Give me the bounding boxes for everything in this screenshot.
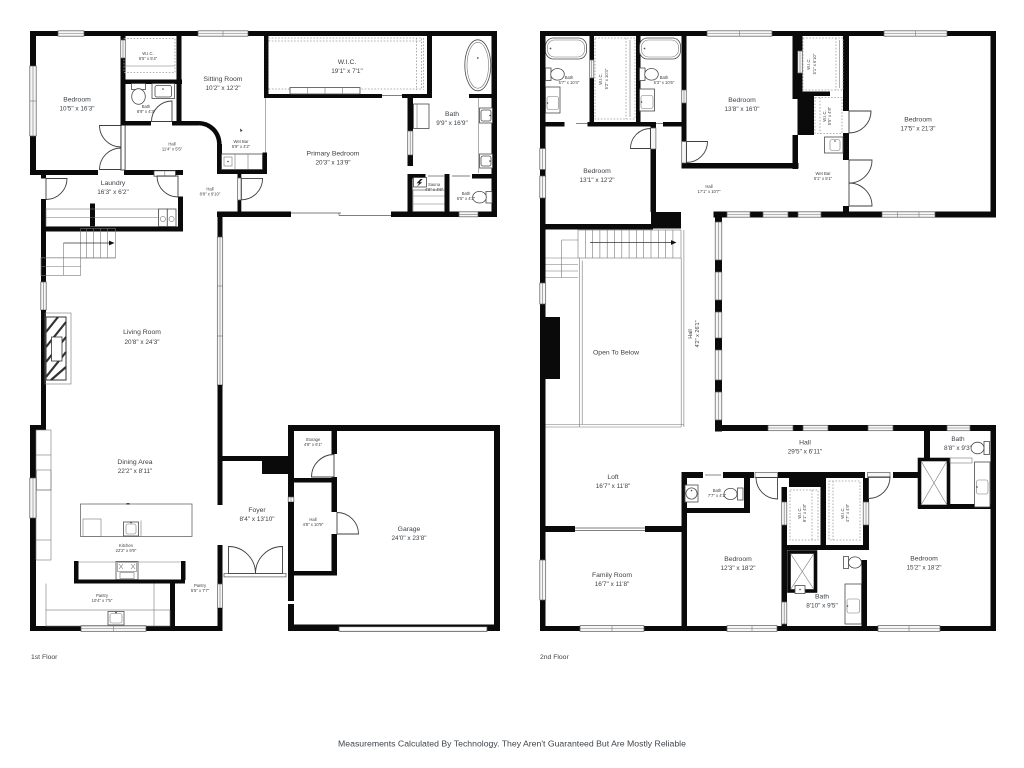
svg-text:22'2" x 8'11": 22'2" x 8'11" [118, 468, 153, 475]
svg-text:5'1" x 5'1": 5'1" x 5'1" [814, 176, 833, 181]
svg-text:16'3" x 6'2": 16'3" x 6'2" [97, 189, 129, 196]
svg-text:Garage: Garage [398, 526, 421, 533]
svg-text:16'7" x 11'8": 16'7" x 11'8" [596, 483, 631, 490]
svg-text:Bedroom: Bedroom [910, 556, 938, 563]
svg-text:5'5" x 4'2": 5'5" x 4'2" [457, 196, 476, 201]
svg-text:W.I.C.: W.I.C. [338, 59, 357, 66]
svg-text:Bedroom: Bedroom [583, 168, 611, 175]
svg-text:Bedroom: Bedroom [724, 556, 752, 563]
svg-text:Laundry: Laundry [101, 180, 126, 187]
svg-text:Primary Bedroom: Primary Bedroom [307, 151, 360, 158]
svg-text:5'5" x 7'7": 5'5" x 7'7" [191, 588, 210, 593]
svg-text:Bedroom: Bedroom [63, 97, 91, 104]
svg-text:10'2" x 12'2": 10'2" x 12'2" [205, 85, 240, 92]
svg-text:10'4" x 7'5": 10'4" x 7'5" [92, 598, 113, 603]
svg-text:Hall: Hall [688, 329, 694, 338]
svg-text:20'3" x 13'9": 20'3" x 13'9" [315, 160, 350, 167]
svg-text:17'1" x 10'7": 17'1" x 10'7" [698, 189, 721, 194]
svg-text:7'7" x 4'1": 7'7" x 4'1" [708, 493, 727, 498]
svg-text:Family Room: Family Room [592, 572, 632, 579]
svg-text:8'9" x 4'3": 8'9" x 4'3" [137, 109, 156, 114]
svg-text:Bedroom: Bedroom [904, 117, 932, 124]
svg-text:8'10" x 9'5": 8'10" x 9'5" [806, 603, 838, 610]
svg-text:24'0" x 23'8": 24'0" x 23'8" [391, 535, 426, 542]
svg-text:4'7" x 4'9": 4'7" x 4'9" [845, 503, 850, 522]
svg-text:6'5" x 5'4": 6'5" x 5'4" [139, 56, 158, 61]
svg-text:17'5" x 21'3": 17'5" x 21'3" [900, 126, 935, 133]
svg-text:Measurements Calculated By Tec: Measurements Calculated By Technology. T… [338, 739, 686, 749]
svg-text:8'8" x 9'3": 8'8" x 9'3" [944, 445, 972, 452]
svg-text:Sitting Room: Sitting Room [204, 76, 243, 83]
svg-text:5'1" x 6'10": 5'1" x 6'10" [812, 53, 817, 74]
svg-text:20'8" x 24'3": 20'8" x 24'3" [124, 339, 159, 346]
svg-text:4'9" x 4'6": 4'9" x 4'6" [425, 187, 444, 192]
svg-text:5'3" x 10'6": 5'3" x 10'6" [654, 80, 675, 85]
svg-text:22'2" x 9'9": 22'2" x 9'9" [116, 548, 137, 553]
svg-text:8'8" x 9'10": 8'8" x 9'10" [200, 192, 221, 197]
svg-text:5'9" x 4'2": 5'9" x 4'2" [232, 144, 251, 149]
svg-text:4'2" x 26'1": 4'2" x 26'1" [695, 320, 701, 347]
svg-text:Dining Area: Dining Area [117, 459, 152, 466]
svg-text:8'4" x 13'10": 8'4" x 13'10" [239, 516, 274, 523]
svg-text:4'8" x 6'1": 4'8" x 6'1" [304, 442, 323, 447]
svg-text:Bath: Bath [445, 111, 459, 118]
svg-text:13'1" x 12'2": 13'1" x 12'2" [579, 177, 614, 184]
svg-text:11'4" x 5'5": 11'4" x 5'5" [162, 147, 183, 152]
svg-text:2nd Floor: 2nd Floor [540, 654, 569, 661]
svg-text:Living Room: Living Room [123, 329, 161, 336]
svg-text:5'2" x 10'4": 5'2" x 10'4" [604, 68, 609, 89]
svg-text:Open To Below: Open To Below [593, 350, 639, 357]
svg-text:Bedroom: Bedroom [728, 97, 756, 104]
svg-text:12'3" x 18'2": 12'3" x 18'2" [720, 565, 755, 572]
svg-text:Hall: Hall [799, 440, 811, 447]
svg-text:Bath: Bath [815, 594, 829, 601]
svg-text:13'8" x 16'0": 13'8" x 16'0" [724, 106, 759, 113]
svg-text:29'5" x 6'11": 29'5" x 6'11" [788, 449, 823, 456]
svg-text:5'5" x 4'9": 5'5" x 4'9" [827, 106, 832, 125]
svg-text:Loft: Loft [607, 474, 618, 481]
svg-text:19'1" x 7'1": 19'1" x 7'1" [331, 68, 363, 75]
svg-text:Foyer: Foyer [248, 507, 266, 514]
svg-text:W.I.C.: W.I.C. [806, 58, 811, 69]
svg-text:W.I.C.: W.I.C. [598, 73, 603, 84]
svg-text:5'7" x 10'4": 5'7" x 10'4" [559, 80, 580, 85]
svg-text:9'9" x 16'9": 9'9" x 16'9" [436, 120, 468, 127]
svg-text:9'1" x 4'8": 9'1" x 4'8" [802, 503, 807, 522]
svg-text:16'7" x 11'8": 16'7" x 11'8" [595, 581, 630, 588]
svg-text:4'8" x 10'9": 4'8" x 10'9" [303, 522, 324, 527]
svg-text:15'2" x 18'2": 15'2" x 18'2" [906, 565, 941, 572]
svg-text:Bath: Bath [951, 436, 965, 443]
svg-text:1st Floor: 1st Floor [31, 654, 58, 661]
svg-text:10'5" x 16'3": 10'5" x 16'3" [59, 106, 94, 113]
